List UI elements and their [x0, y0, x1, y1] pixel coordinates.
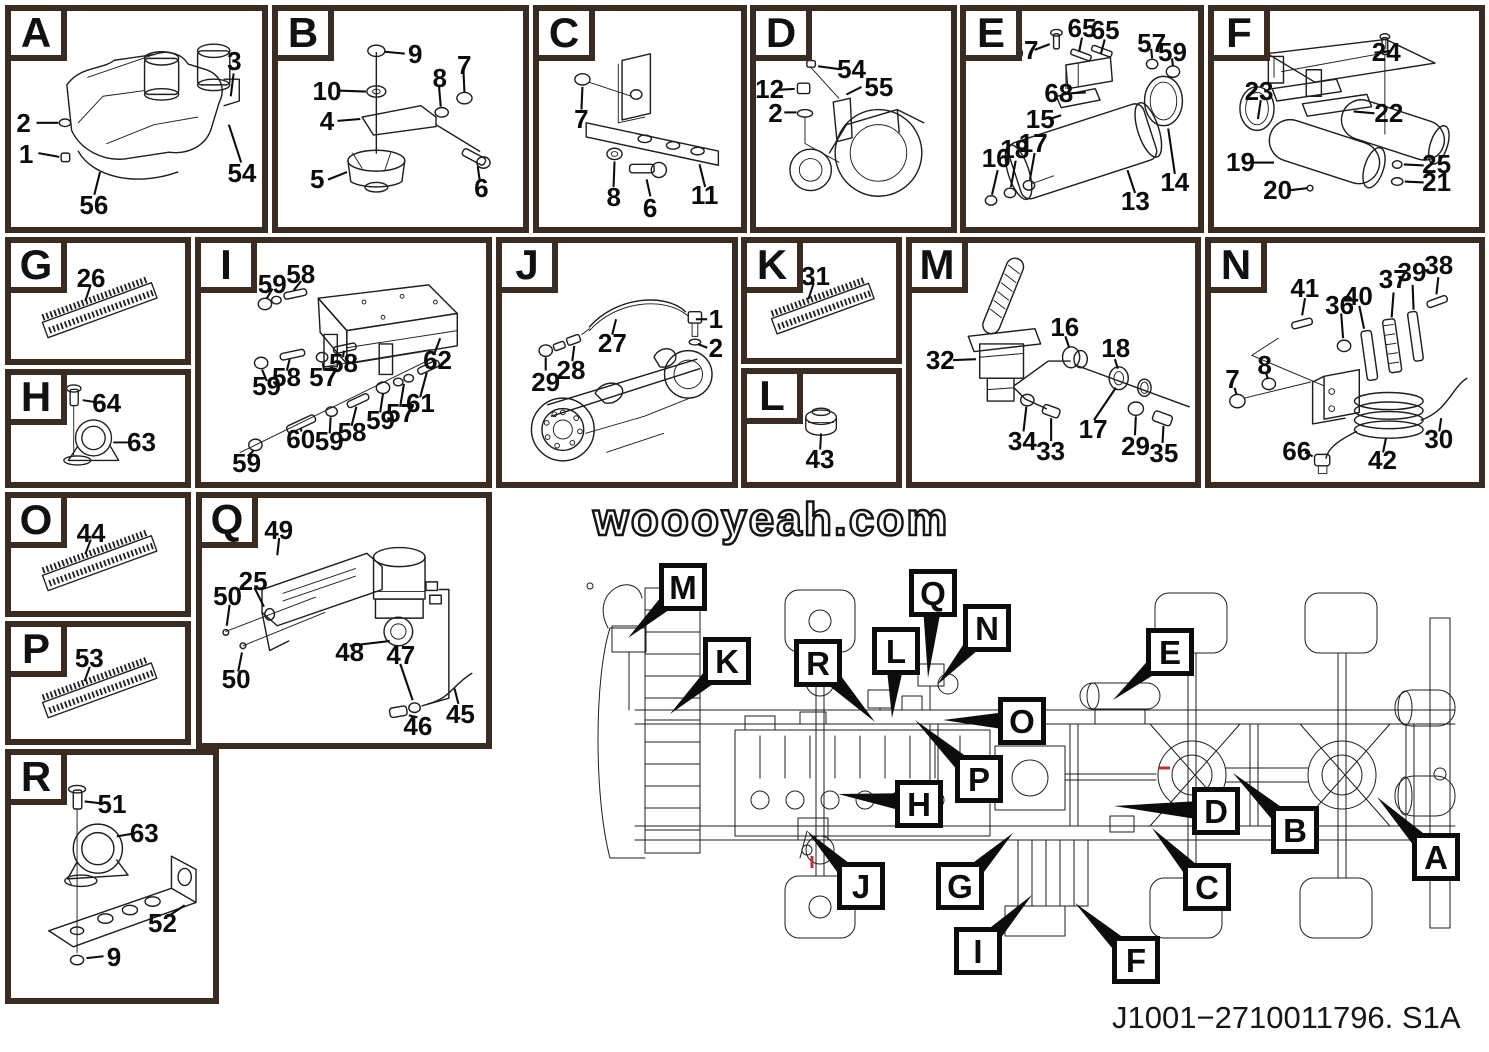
callout-c-11: 11	[691, 182, 719, 208]
callout-r-52: 52	[148, 910, 177, 936]
panel-l: L 43	[741, 368, 902, 488]
callout-q-45: 45	[446, 701, 475, 727]
panel-i: I	[195, 237, 492, 488]
callout-a-3: 3	[227, 48, 241, 74]
chassis-label-c: C	[1183, 863, 1231, 911]
callout-b-8: 8	[432, 65, 446, 91]
panel-d: D 5455122	[750, 5, 957, 233]
callout-b-10: 10	[313, 78, 342, 104]
callout-q-48: 48	[335, 639, 364, 665]
panel-o-badge: O	[5, 492, 67, 548]
callout-c-6: 6	[643, 195, 657, 221]
part-number: J1001−2710011796. S1A	[1112, 1000, 1461, 1036]
panel-c: C 78611	[533, 5, 747, 233]
callout-q-47: 47	[386, 642, 415, 668]
panel-b-badge: B	[272, 5, 334, 61]
callout-p-53: 53	[75, 645, 104, 671]
panel-c-badge: C	[533, 5, 595, 61]
callout-m-32: 32	[926, 347, 955, 373]
callout-b-7: 7	[457, 52, 471, 78]
chassis-label-n: N	[963, 604, 1011, 652]
chassis-label-h: H	[895, 780, 943, 828]
panel-d-badge: D	[750, 5, 812, 61]
panel-l-badge: L	[741, 368, 803, 424]
callout-g-26: 26	[77, 265, 106, 291]
panel-q: Q	[196, 492, 492, 749]
callout-h-63: 63	[127, 429, 156, 455]
callout-a-1: 1	[19, 141, 33, 167]
callout-a-56: 56	[79, 192, 108, 218]
callout-n-39: 39	[1398, 259, 1427, 285]
callout-j-28: 28	[557, 357, 586, 383]
chassis-label-b: B	[1271, 806, 1319, 854]
parts-catalog-page: A 2135456 B	[0, 0, 1489, 1052]
callout-i-60: 60	[286, 426, 315, 452]
chassis-label-o: O	[998, 697, 1046, 745]
callout-d-55: 55	[864, 74, 893, 100]
panel-o: O 44	[5, 492, 191, 617]
panel-k: K 31	[741, 237, 902, 364]
panel-b: B 91045876	[272, 5, 529, 233]
chassis-label-e: E	[1146, 628, 1194, 676]
callout-m-34: 34	[1008, 428, 1037, 454]
callout-q-50: 50	[213, 583, 242, 609]
callout-o-44: 44	[77, 520, 106, 546]
callout-n-42: 42	[1368, 447, 1397, 473]
callout-f-20: 20	[1263, 177, 1292, 203]
callout-n-30: 30	[1424, 426, 1453, 452]
panel-r-badge: R	[5, 749, 67, 805]
panel-e: E	[960, 5, 1204, 233]
chassis-label-p: P	[955, 755, 1003, 803]
panel-p: P 53	[5, 621, 191, 745]
callout-i-58: 58	[329, 350, 358, 376]
callout-m-35: 35	[1149, 440, 1178, 466]
callout-c-7: 7	[574, 106, 588, 132]
callout-r-63: 63	[130, 820, 159, 846]
panel-q-badge: Q	[196, 492, 258, 548]
chassis-label-j: J	[837, 862, 885, 910]
callout-l-43: 43	[806, 446, 835, 472]
callout-i-59: 59	[232, 450, 261, 476]
callout-m-29: 29	[1121, 433, 1150, 459]
panel-n: N	[1205, 237, 1485, 488]
callout-q-25: 25	[239, 568, 268, 594]
callout-e-65: 65	[1091, 17, 1120, 43]
callout-m-18: 18	[1101, 335, 1130, 361]
panel-g: G 26	[5, 237, 191, 365]
chassis-label-r: R	[794, 639, 842, 687]
callout-a-2: 2	[16, 110, 30, 136]
panel-a: A 2135456	[5, 5, 268, 233]
callout-n-66: 66	[1282, 438, 1311, 464]
panel-p-badge: P	[5, 621, 67, 677]
panel-j: J	[496, 237, 738, 488]
chassis-label-a: A	[1412, 833, 1460, 881]
watermark: woooyeah.com	[593, 492, 949, 546]
callout-i-62: 62	[423, 347, 452, 373]
callout-d-54: 54	[837, 56, 866, 82]
callout-m-33: 33	[1036, 438, 1065, 464]
callout-e-14: 14	[1160, 169, 1189, 195]
callout-n-38: 38	[1424, 252, 1453, 278]
callout-j-27: 27	[598, 330, 627, 356]
callout-n-40: 40	[1344, 283, 1373, 309]
panel-m: M	[906, 237, 1201, 488]
panel-e-badge: E	[960, 5, 1022, 61]
chassis-label-q: Q	[909, 569, 957, 617]
callout-b-6: 6	[474, 175, 488, 201]
callout-e-17: 17	[1019, 130, 1048, 156]
callout-q-50: 50	[222, 666, 251, 692]
callout-q-46: 46	[403, 713, 432, 739]
chassis-label-d: D	[1192, 787, 1240, 835]
callout-a-54: 54	[227, 160, 256, 186]
panel-f-badge: F	[1208, 5, 1270, 61]
callout-b-9: 9	[408, 41, 422, 67]
callout-c-8: 8	[607, 184, 621, 210]
callout-i-61: 61	[406, 390, 435, 416]
callout-e-59: 59	[1158, 39, 1187, 65]
callout-f-24: 24	[1372, 39, 1401, 65]
callout-j-29: 29	[531, 369, 560, 395]
callout-n-7: 7	[1225, 366, 1239, 392]
callout-d-2: 2	[768, 100, 782, 126]
panel-h: H 6463	[5, 369, 191, 488]
callout-j-1: 1	[709, 306, 723, 332]
panel-i-badge: I	[195, 237, 257, 293]
panel-j-badge: J	[496, 237, 558, 293]
chassis-label-m: M	[659, 563, 707, 611]
callout-f-19: 19	[1226, 149, 1255, 175]
callout-e-13: 13	[1121, 188, 1150, 214]
callout-i-59: 59	[252, 373, 281, 399]
callout-i-58: 58	[338, 419, 367, 445]
callout-k-31: 31	[801, 263, 830, 289]
callout-m-16: 16	[1050, 314, 1079, 340]
callout-n-8: 8	[1257, 352, 1271, 378]
panel-g-badge: G	[5, 237, 67, 293]
callout-f-23: 23	[1245, 78, 1274, 104]
callout-r-9: 9	[107, 944, 121, 970]
panel-h-badge: H	[5, 369, 67, 425]
panel-k-badge: K	[741, 237, 803, 293]
callout-e-68: 68	[1044, 80, 1073, 106]
callout-f-21: 21	[1422, 169, 1451, 195]
chassis-label-i: I	[954, 927, 1002, 975]
chassis-label-f: F	[1112, 936, 1160, 984]
panel-m-badge: M	[906, 237, 968, 293]
callout-b-4: 4	[320, 108, 334, 134]
chassis-label-k: K	[703, 637, 751, 685]
callout-n-41: 41	[1290, 275, 1319, 301]
panel-n-badge: N	[1205, 237, 1267, 293]
callout-f-22: 22	[1374, 100, 1403, 126]
chassis-label-g: G	[936, 862, 984, 910]
callout-r-51: 51	[98, 791, 127, 817]
chassis-label-l: L	[872, 627, 920, 675]
callout-j-2: 2	[709, 335, 723, 361]
callout-m-17: 17	[1079, 416, 1108, 442]
callout-i-58: 58	[286, 261, 315, 287]
callout-i-59: 59	[258, 271, 287, 297]
panel-f: F	[1208, 5, 1485, 233]
callout-q-49: 49	[264, 517, 293, 543]
panel-a-badge: A	[5, 5, 67, 61]
callout-h-64: 64	[92, 390, 121, 416]
panel-r: R 5163529	[5, 749, 219, 1004]
callout-b-5: 5	[310, 166, 324, 192]
